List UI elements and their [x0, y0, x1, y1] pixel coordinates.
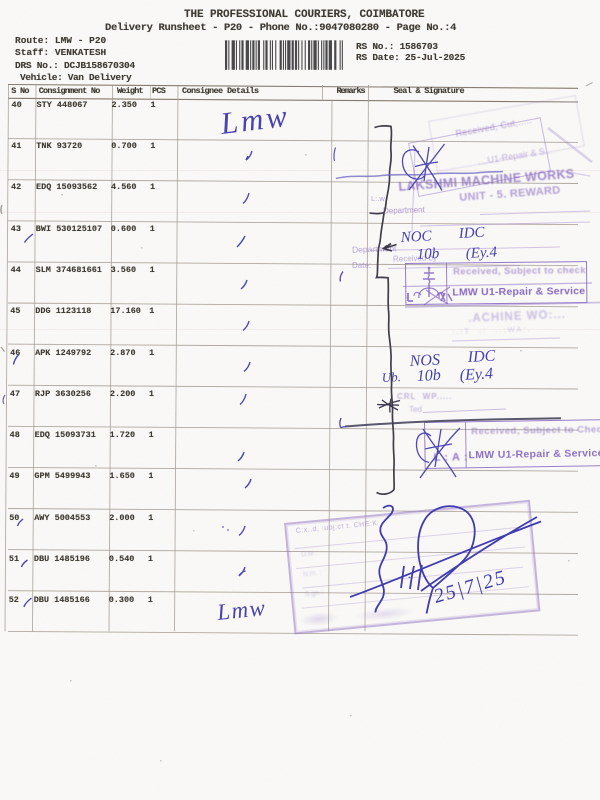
svg-text:(Ey.4: (Ey.4	[459, 365, 493, 384]
svg-text:IDC: IDC	[457, 225, 486, 242]
svg-text:Lmw: Lmw	[215, 595, 268, 625]
svg-text:(Ey.4: (Ey.4	[465, 244, 498, 262]
svg-text:Lmw: Lmw	[218, 98, 292, 141]
svg-text:10b: 10b	[416, 367, 441, 385]
svg-text:IDC: IDC	[466, 348, 496, 366]
svg-text:10b: 10b	[416, 246, 440, 263]
svg-text:Ub.: Ub.	[381, 369, 401, 385]
svg-text:NOC: NOC	[399, 228, 433, 246]
svg-text:25|7|25: 25|7|25	[431, 566, 509, 608]
